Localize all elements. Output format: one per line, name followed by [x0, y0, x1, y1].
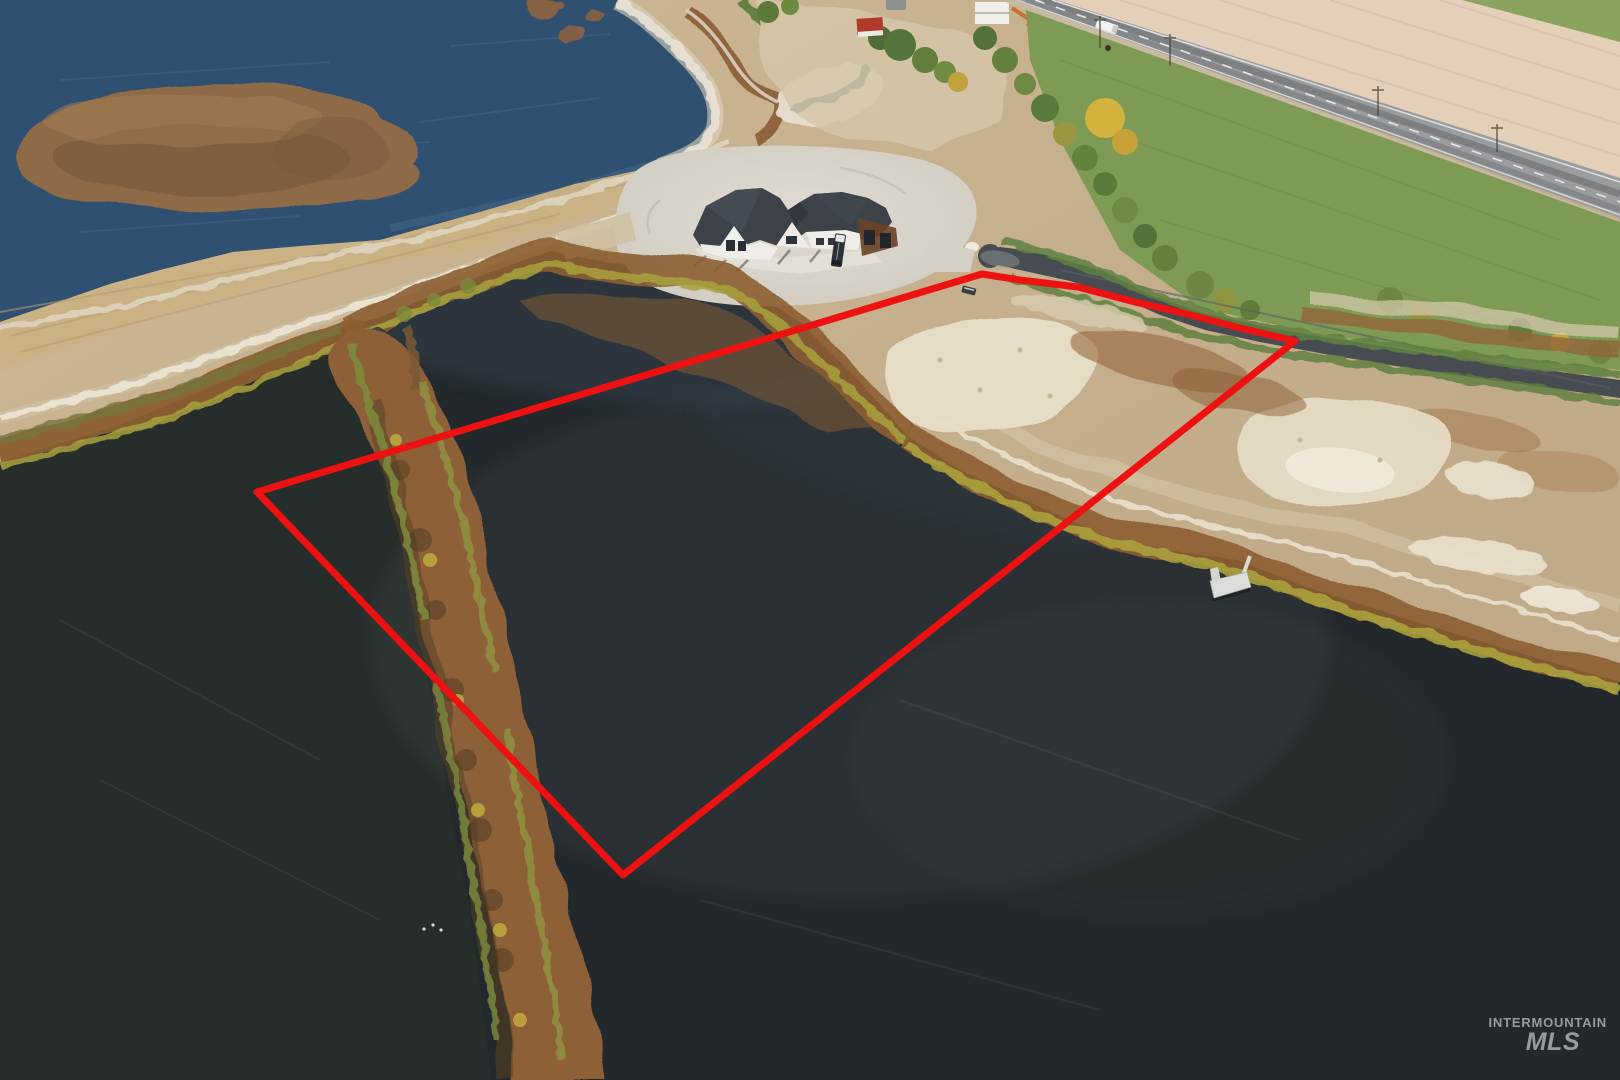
aerial-photo: INTERMOUNTAIN MLS	[0, 0, 1620, 1080]
aerial-photo-canvas	[0, 0, 1620, 1080]
animal	[1105, 45, 1111, 51]
